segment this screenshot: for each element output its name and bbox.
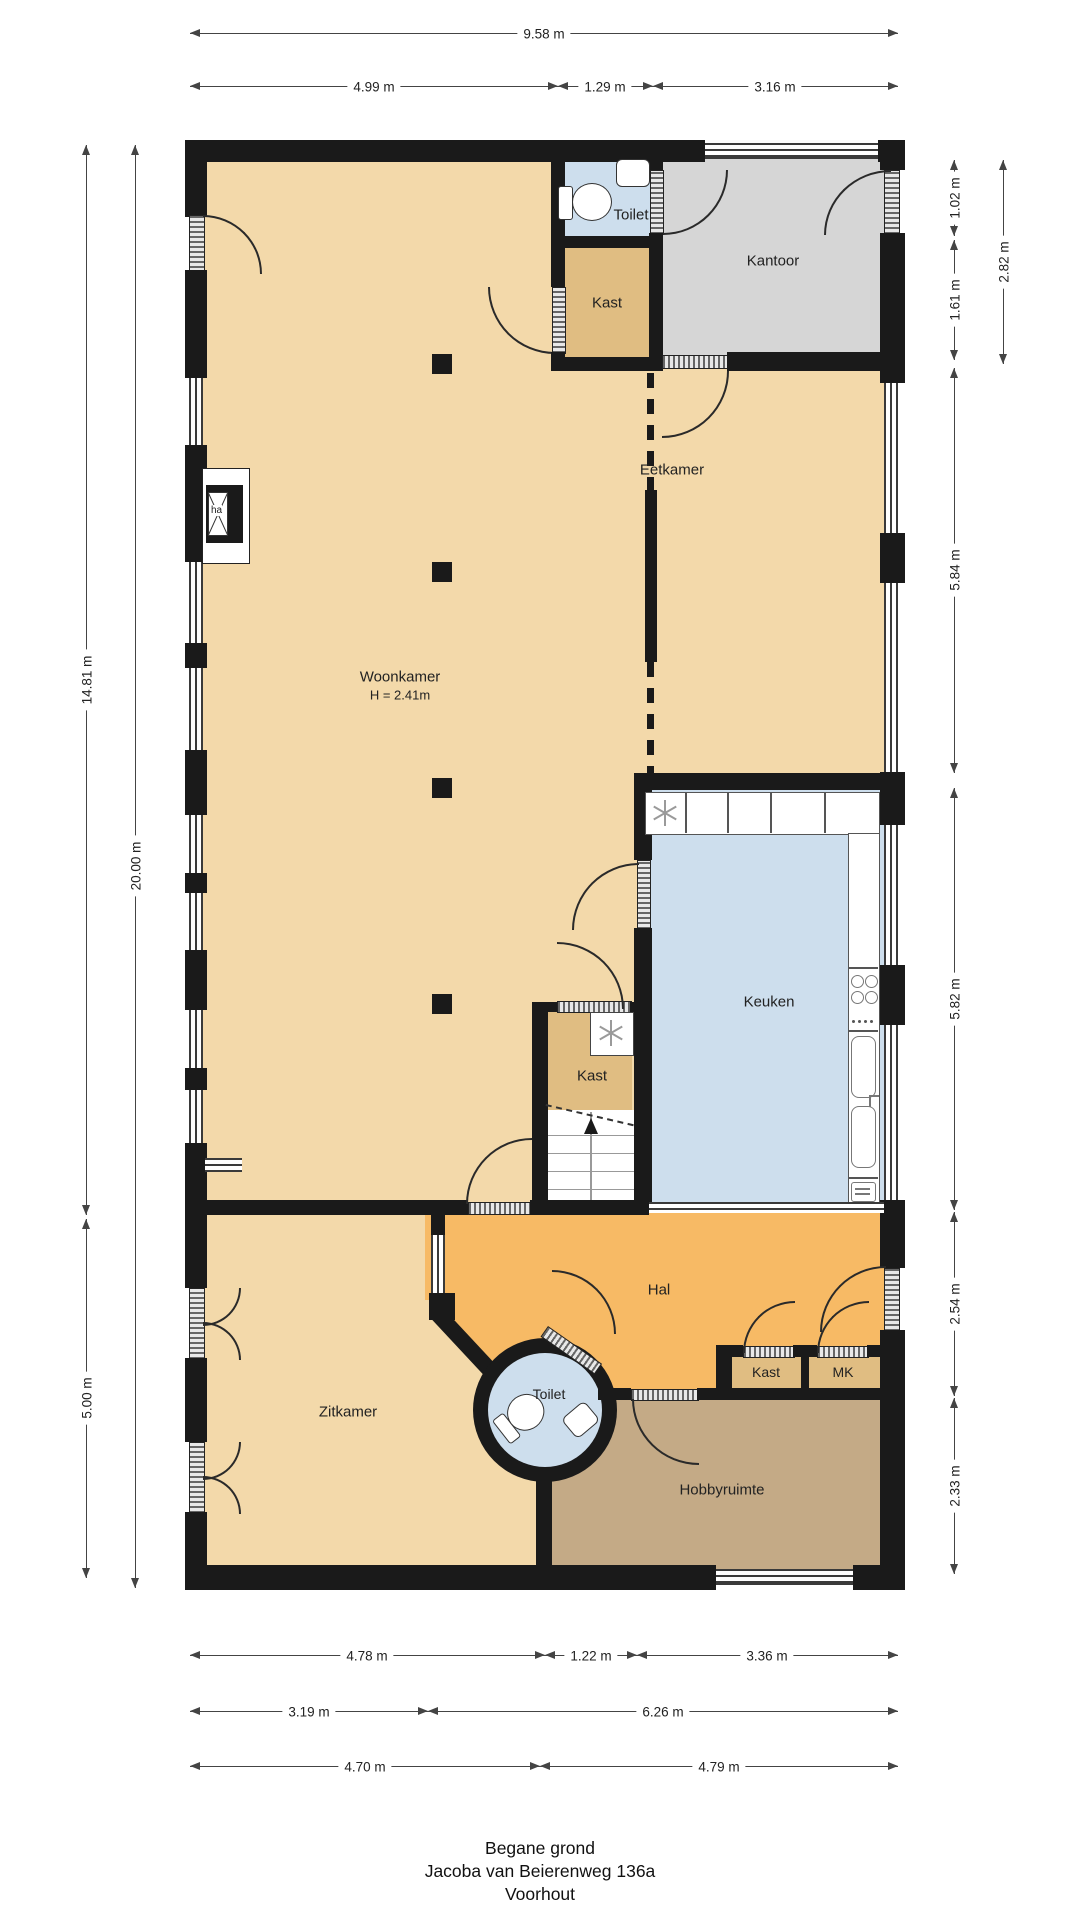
arrowhead [950, 226, 958, 236]
arrowhead [190, 82, 200, 90]
room-label-zitkamer: Zitkamer [319, 1404, 377, 1421]
sink-basin-icon [851, 1106, 876, 1168]
arrowhead [950, 1398, 958, 1408]
wall-woonkamer-bottom [185, 1200, 468, 1215]
arrowhead [643, 82, 653, 90]
wall-toilet-bottom [551, 236, 655, 248]
arrowhead [190, 1762, 200, 1770]
arrowhead [82, 145, 90, 155]
arrowhead [82, 1205, 90, 1215]
column [432, 994, 452, 1014]
door-kantoor-eetkamer [662, 355, 729, 369]
dimension-label: 4.79 m [692, 1760, 745, 1775]
window-left [189, 1010, 203, 1068]
room-label-keuken: Keuken [744, 994, 795, 1011]
dimension-label: 4.99 m [347, 80, 400, 95]
window-left [189, 668, 203, 750]
window-right-eetkamer [884, 583, 898, 772]
outer-wall-left [185, 140, 207, 217]
dimension-label: 14.81 m [80, 650, 95, 711]
wall-kantoor-bottom [649, 352, 662, 371]
arrowhead [888, 82, 898, 90]
arrowhead [950, 350, 958, 360]
arrowhead [950, 240, 958, 250]
arrowhead [190, 1707, 200, 1715]
wall-kast-mid-left [532, 1002, 548, 1212]
counter-divider [727, 792, 729, 833]
window-right-eetkamer [884, 383, 898, 533]
dimension-label: 3.36 m [740, 1649, 793, 1664]
counter-divider [848, 1030, 878, 1032]
window-left [189, 562, 203, 643]
arrowhead [545, 1651, 555, 1659]
wall-kantoor-bottom [727, 352, 905, 371]
outer-wall-left [185, 1068, 207, 1090]
window-left [189, 1090, 203, 1143]
window-left [189, 378, 203, 445]
column [432, 354, 452, 374]
counter-divider [685, 792, 687, 833]
room-label-mk: MK [833, 1364, 854, 1380]
arrowhead [637, 1651, 647, 1659]
window-left [189, 815, 203, 873]
arrowhead [888, 1762, 898, 1770]
wall-hobby-top [697, 1388, 890, 1400]
dimension-label: 9.58 m [517, 27, 570, 42]
outer-wall-left [185, 1143, 207, 1288]
dishwasher-line [855, 1193, 870, 1195]
washbasin-icon [616, 159, 650, 187]
dimension-label: 1.02 m [948, 171, 963, 224]
door-toilet-top [650, 170, 664, 235]
wall-zit-hal [431, 1213, 445, 1235]
dimension-label: 4.70 m [338, 1760, 391, 1775]
door-entry [884, 1268, 900, 1332]
dimension-label: 5.82 m [948, 972, 963, 1025]
arrowhead [950, 1200, 958, 1210]
dimension-label: 4.78 m [340, 1649, 393, 1664]
counter-divider [824, 792, 826, 833]
outer-wall-left [185, 873, 207, 893]
dimension-label: 1.22 m [564, 1649, 617, 1664]
title-line-3: Voorhout [505, 1884, 575, 1905]
room-label-toilet-round: Toilet [533, 1386, 566, 1402]
window-right-keuken [884, 1025, 898, 1200]
sliding-glass-keuken-hal [649, 1202, 884, 1213]
window-right-keuken [884, 825, 898, 965]
wall-divider [645, 490, 657, 662]
room-label-woonkamer: Woonkamer [360, 669, 441, 686]
dimension-label: 2.33 m [948, 1459, 963, 1512]
dimension-label: 3.16 m [748, 80, 801, 95]
wall-keuken-top [634, 773, 890, 790]
hob-burner-icon [851, 975, 864, 988]
hob-burner-icon [865, 975, 878, 988]
door-keuken [637, 860, 651, 930]
outer-wall-right [880, 1330, 905, 1590]
wall-kantoor-left [649, 158, 663, 170]
arrowhead [950, 788, 958, 798]
arrowhead [418, 1707, 428, 1715]
window-partition [205, 1158, 242, 1172]
wall-hobby-top [598, 1388, 631, 1400]
wall-woonkamer-bottom [530, 1200, 649, 1215]
column [432, 562, 452, 582]
arrowhead [888, 29, 898, 37]
counter-divider [848, 1177, 878, 1179]
sink-basin-icon [851, 1036, 876, 1098]
column [432, 778, 452, 798]
dimension-label: 20.00 m [129, 836, 144, 897]
counter-divider [770, 792, 772, 833]
floorplan-page: ha Toilet Kantoor Kast Eetkamer Woonkame… [0, 0, 1080, 1920]
counter-divider [848, 967, 878, 969]
faucet-icon [869, 1095, 879, 1107]
arrowhead [999, 354, 1007, 364]
window-zit-hal [431, 1235, 445, 1293]
room-label-kast-top: Kast [592, 295, 622, 312]
arrowhead [653, 82, 663, 90]
outer-wall-left [185, 1358, 207, 1442]
room-label-toilet-top: Toilet [613, 207, 648, 224]
dimension-label: 6.26 m [636, 1705, 689, 1720]
arrowhead [540, 1762, 550, 1770]
hob-knob [870, 1020, 873, 1023]
arrowhead [82, 1219, 90, 1229]
arrowhead [627, 1651, 637, 1659]
room-label-hal: Hal [648, 1282, 671, 1299]
dishwasher-icon [851, 1182, 876, 1202]
arrowhead [950, 1564, 958, 1574]
fireplace: ha [202, 468, 250, 564]
dimension-label: 2.54 m [948, 1277, 963, 1330]
wall-below-toilet [536, 1470, 552, 1570]
arrowhead [131, 145, 139, 155]
outer-wall-right [880, 965, 905, 1025]
dimension-label: 2.82 m [997, 235, 1012, 288]
outer-wall-left [185, 270, 207, 378]
boiler-icon [652, 800, 678, 826]
arrowhead [190, 1651, 200, 1659]
outer-wall-right [880, 533, 905, 583]
arrowhead [548, 82, 558, 90]
window-left [189, 893, 203, 950]
arrowhead [999, 160, 1007, 170]
wall-kastmk-top [867, 1345, 890, 1357]
title-line-1: Begane grond [485, 1838, 595, 1859]
hob-knob [852, 1020, 855, 1023]
hob-knob [864, 1020, 867, 1023]
hob-burner-icon [851, 991, 864, 1004]
arrowhead [888, 1651, 898, 1659]
outer-wall-bottom [185, 1565, 716, 1590]
arrowhead [535, 1651, 545, 1659]
wall-kast-mid-top [630, 1002, 649, 1012]
wall-kast-mid-top [532, 1002, 557, 1012]
room-label-woonkamer-height: H = 2.41m [370, 688, 430, 703]
window-top-kantoor [705, 143, 878, 159]
arrowhead [82, 1568, 90, 1578]
wall-toilet-left [551, 158, 565, 287]
room-label-kast-hal: Kast [752, 1364, 780, 1380]
wall-kast-top-bottom [551, 357, 660, 371]
kitchen-counter-top [645, 792, 880, 835]
room-label-eetkamer: Eetkamer [640, 462, 704, 479]
arrowhead [950, 368, 958, 378]
arrowhead [190, 29, 200, 37]
stair-up-arrow [584, 1118, 598, 1134]
outer-wall-left [185, 643, 207, 668]
dimension-label: 3.19 m [282, 1705, 335, 1720]
arrowhead [950, 1212, 958, 1222]
wall-kantoor-left [649, 233, 663, 371]
outer-wall-right [880, 140, 905, 170]
toilet-fixture [558, 183, 612, 221]
outer-wall-left [185, 950, 207, 1010]
wall-keuken-left [634, 928, 652, 1212]
vent-icon [598, 1020, 624, 1046]
hob-knob [858, 1020, 861, 1023]
arrowhead [888, 1707, 898, 1715]
dimension-label: 1.61 m [948, 273, 963, 326]
wall-kastmk-top [716, 1345, 743, 1357]
arrowhead [530, 1762, 540, 1770]
arrowhead [950, 763, 958, 773]
dishwasher-line [855, 1188, 870, 1190]
fireplace-label: ha [211, 505, 222, 516]
arrowhead [428, 1707, 438, 1715]
arrowhead [950, 160, 958, 170]
dimension-label: 5.00 m [80, 1371, 95, 1424]
arrowhead [131, 1578, 139, 1588]
opening-dashed [647, 662, 654, 778]
outer-wall-left [185, 750, 207, 815]
dimension-label: 1.29 m [578, 80, 631, 95]
arrowhead [950, 1386, 958, 1396]
title-line-2: Jacoba van Beierenweg 136a [425, 1861, 656, 1882]
dimension-label: 5.84 m [948, 543, 963, 596]
arrowhead [558, 82, 568, 90]
room-label-kantoor: Kantoor [747, 253, 800, 270]
room-label-hobbyruimte: Hobbyruimte [679, 1482, 764, 1499]
room-label-kast-mid: Kast [577, 1068, 607, 1085]
hob-burner-icon [865, 991, 878, 1004]
window-bottom-hobby [716, 1569, 853, 1585]
